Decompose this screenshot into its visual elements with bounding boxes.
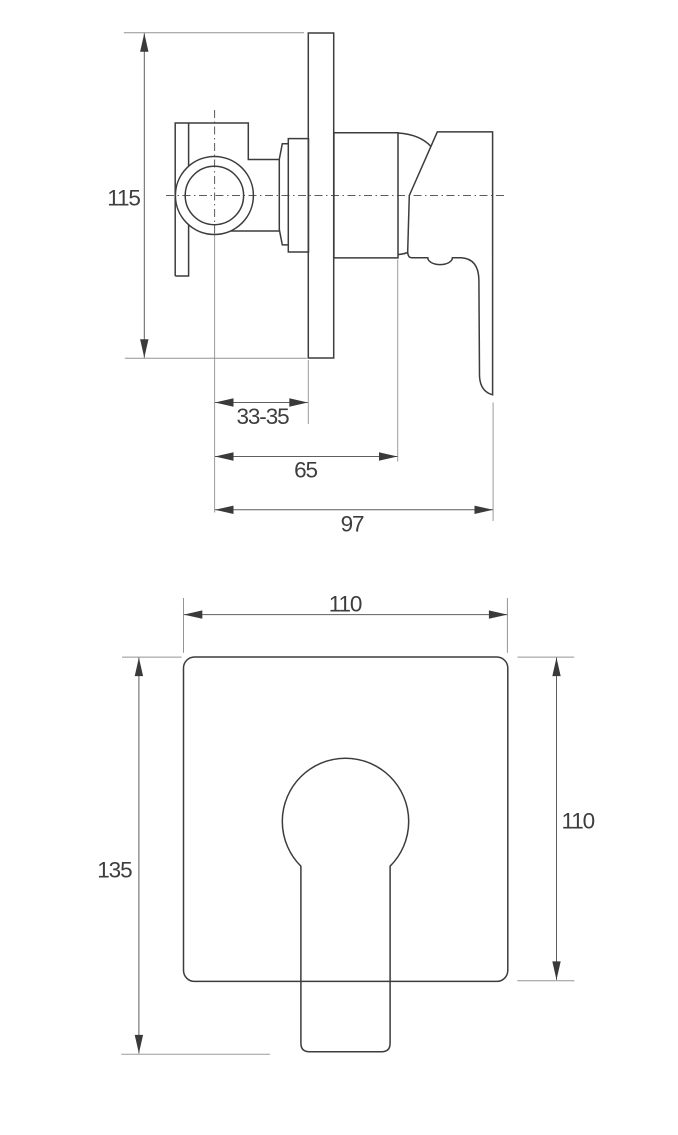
svg-text:33-35: 33-35 xyxy=(236,404,289,429)
svg-text:110: 110 xyxy=(329,592,362,617)
svg-text:115: 115 xyxy=(107,185,140,210)
svg-text:135: 135 xyxy=(97,858,132,883)
svg-text:65: 65 xyxy=(294,458,317,483)
svg-text:110: 110 xyxy=(562,808,595,833)
svg-text:97: 97 xyxy=(341,511,364,536)
